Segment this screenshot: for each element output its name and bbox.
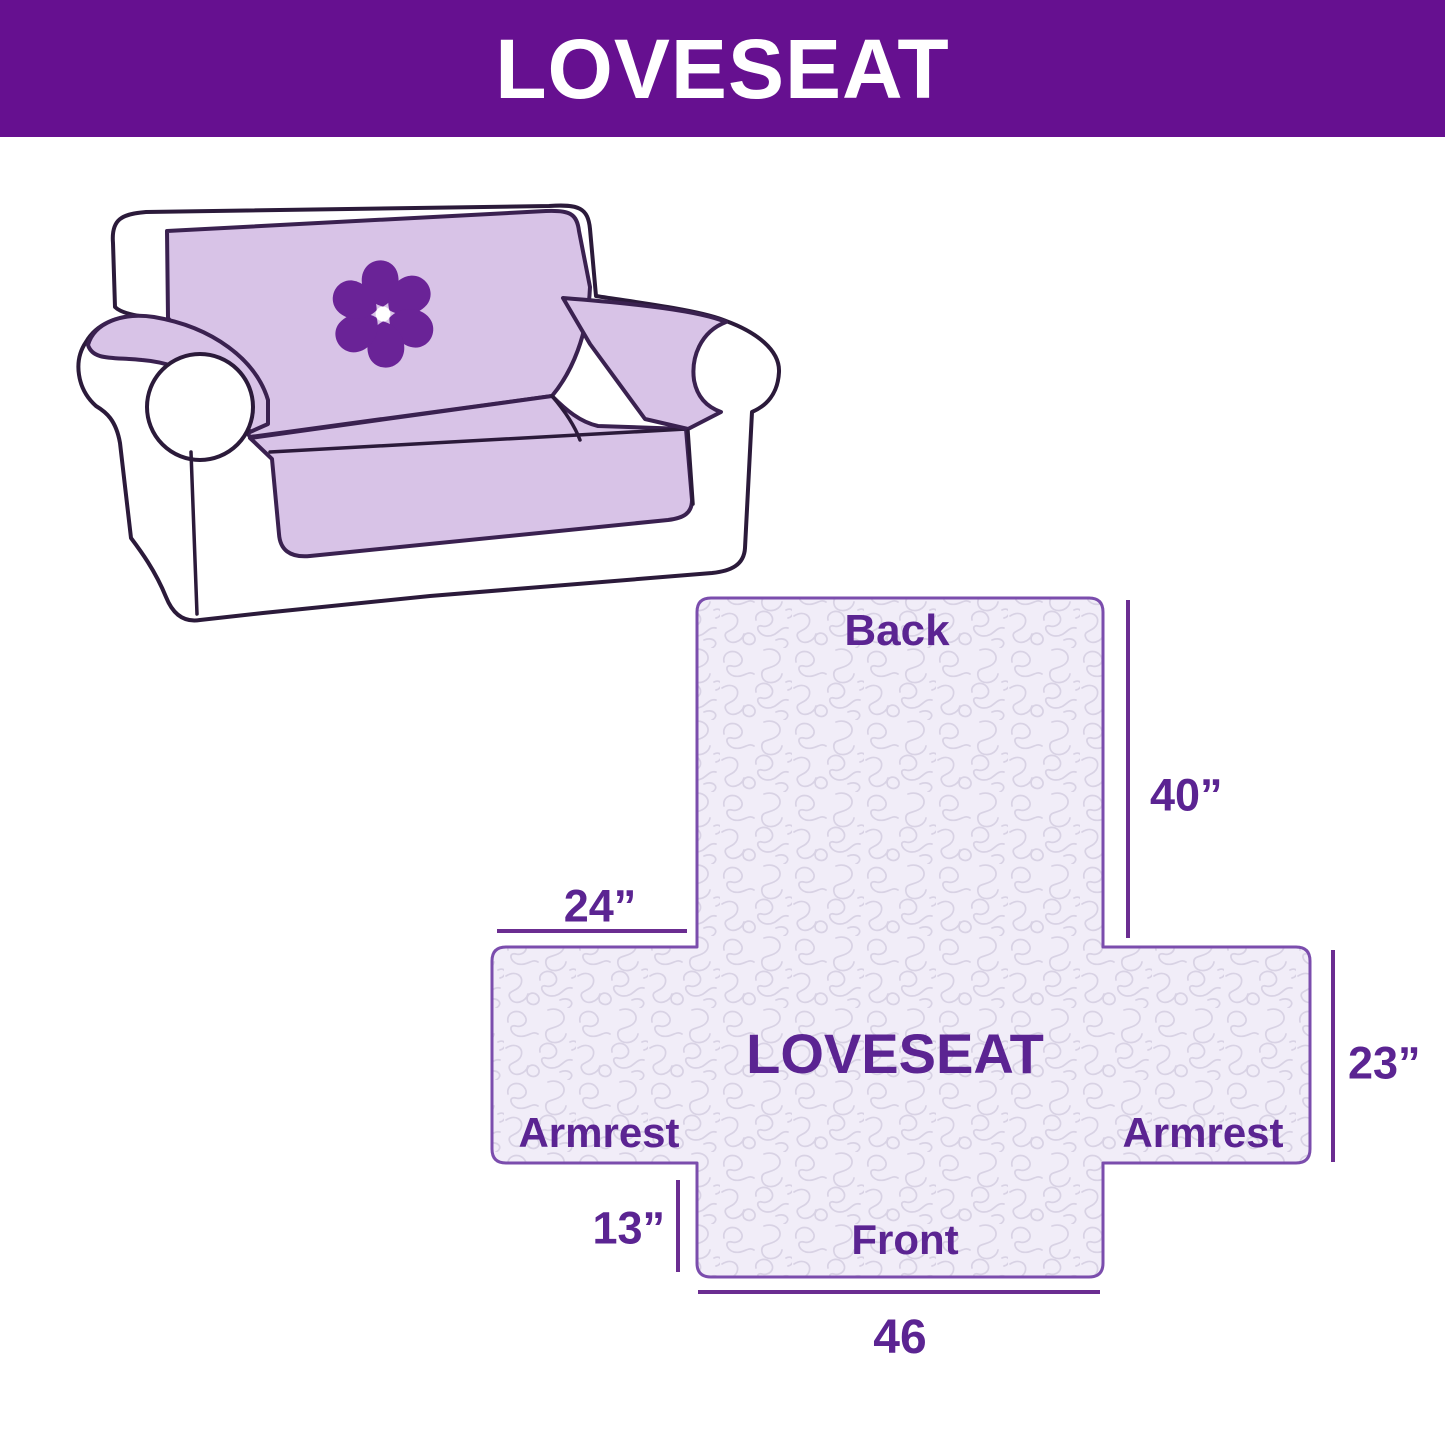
diagram-label-center: LOVESEAT [746,1026,1044,1082]
illustration-canvas [0,0,1445,1445]
cover-diagram-shape [492,598,1310,1277]
diagram-label-armrest-left: Armrest [518,1112,679,1154]
cover-flat-diagram [492,598,1333,1292]
diagram-label-front: Front [851,1219,958,1261]
diagram-label-back: Back [844,609,949,653]
dimension-front-flap: 13” [592,1206,665,1251]
infographic-root: LOVESEAT [0,0,1445,1445]
dimension-armrest-side: 23” [1348,1041,1421,1086]
dimension-back-height: 40” [1150,773,1223,818]
dimension-back-top-width: 24” [564,884,637,929]
dimension-front-width: 46 [873,1314,926,1362]
diagram-label-armrest-right: Armrest [1122,1112,1283,1154]
sofa-illustration [78,206,779,621]
left-armrest-roll [147,354,253,460]
